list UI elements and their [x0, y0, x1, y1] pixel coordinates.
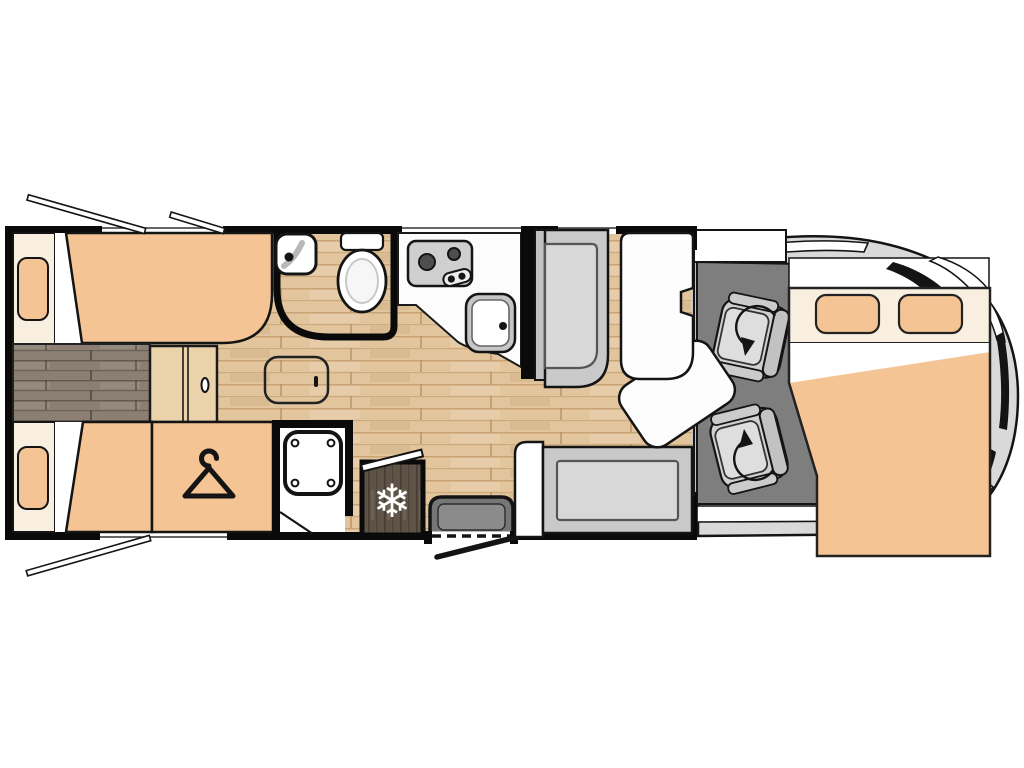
bench-forward-cushion [545, 244, 597, 368]
hob-burner-large [419, 254, 435, 270]
drop-bed-pillow [816, 295, 879, 333]
washbasin-faucet [285, 253, 294, 262]
snowflake-icon: ❄ [373, 474, 412, 528]
drop-down-bed [789, 288, 990, 556]
shower [272, 420, 353, 538]
floorplan-stage: ❄ [0, 0, 1024, 768]
drop-bed-pillow [899, 295, 962, 333]
habitation-section: ❄ [5, 195, 741, 576]
shower-wall-left [272, 420, 280, 538]
dash-panel [694, 230, 786, 262]
seat-cushion [716, 306, 770, 366]
kitchen-faucet [499, 322, 507, 330]
bench-rear-pillar [515, 442, 543, 537]
bench-rear-cushion [557, 461, 678, 520]
tray-screw [292, 480, 299, 487]
entry-step-inner [438, 504, 505, 530]
hob-burner-small [448, 248, 460, 260]
motorhome-floorplan: ❄ [0, 0, 1024, 768]
window-flap [26, 535, 151, 576]
wardrobe [152, 422, 273, 532]
center-aisle [13, 344, 150, 422]
pillow-upper [18, 258, 48, 320]
tray-screw [328, 440, 335, 447]
tray-screw [292, 440, 299, 447]
dinette-table [621, 233, 693, 379]
tray-screw [328, 480, 335, 487]
mattress-upper [66, 233, 272, 343]
cabinet-handle [202, 378, 209, 392]
toilet-bowl-inner [346, 259, 378, 303]
shower-wall-top [272, 420, 353, 428]
toilet-cistern [341, 233, 383, 250]
shower-wall-right [345, 420, 353, 516]
kitchen-dinette-wall [521, 226, 535, 379]
bench-forward-backrest [535, 230, 545, 380]
ottoman-handle [314, 376, 318, 387]
door-jamb [424, 531, 432, 544]
pillow-lower [18, 447, 48, 509]
